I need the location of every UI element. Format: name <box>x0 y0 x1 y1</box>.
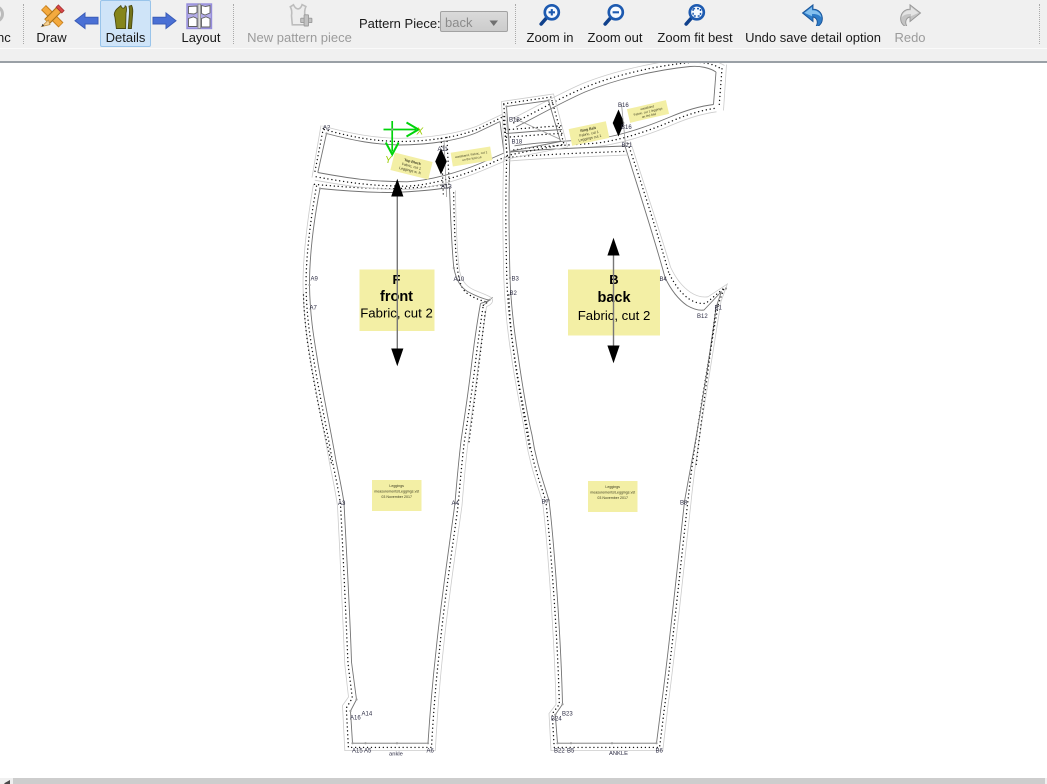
svg-text:B4: B4 <box>660 277 668 283</box>
svg-text:A11: A11 <box>438 147 449 153</box>
svg-text:ankle: ankle <box>389 752 403 758</box>
svg-text:B1: B1 <box>715 306 723 312</box>
svg-text:03 November 2017: 03 November 2017 <box>597 496 628 500</box>
svg-text:B12: B12 <box>697 314 708 320</box>
svg-text:03 November 2017: 03 November 2017 <box>381 495 412 499</box>
svg-text:A5: A5 <box>364 749 372 755</box>
svg-text:B3: B3 <box>512 277 520 283</box>
svg-text:A14: A14 <box>362 712 373 718</box>
svg-text:Fabric, cut 2: Fabric, cut 2 <box>360 306 433 321</box>
svg-text:A4: A4 <box>452 501 460 507</box>
svg-text:B22: B22 <box>554 749 565 755</box>
svg-text:B18: B18 <box>512 140 523 146</box>
svg-text:ANKLE: ANKLE <box>609 751 628 757</box>
svg-text:B7: B7 <box>542 500 550 506</box>
svg-text:A9: A9 <box>311 277 319 283</box>
svg-text:A13: A13 <box>441 185 452 191</box>
svg-text:A7: A7 <box>310 306 318 312</box>
svg-text:front: front <box>380 289 413 305</box>
svg-text:A6: A6 <box>427 749 435 755</box>
svg-text:A3: A3 <box>338 501 346 507</box>
svg-text:A10: A10 <box>454 277 465 283</box>
svg-text:Leggings: Leggings <box>389 484 404 488</box>
svg-text:back: back <box>597 290 631 306</box>
svg-text:A15: A15 <box>352 749 363 755</box>
svg-text:B2: B2 <box>510 291 518 297</box>
svg-text:B8: B8 <box>680 501 688 507</box>
svg-text:B21: B21 <box>622 143 633 149</box>
svg-text:B18: B18 <box>509 118 520 124</box>
svg-text:measurements/Leggings.vst: measurements/Leggings.vst <box>590 491 635 495</box>
svg-text:Leggings: Leggings <box>605 485 620 489</box>
svg-text:A2: A2 <box>323 126 331 132</box>
svg-text:B6: B6 <box>656 749 664 755</box>
svg-text:X: X <box>416 127 424 138</box>
svg-text:A16: A16 <box>350 716 361 722</box>
svg-text:F: F <box>393 272 401 287</box>
svg-text:measurements/Leggings.vst: measurements/Leggings.vst <box>374 490 419 494</box>
svg-text:B24: B24 <box>551 717 562 723</box>
svg-text:B23: B23 <box>562 712 573 718</box>
svg-text:B5: B5 <box>567 749 575 755</box>
svg-text:B16: B16 <box>618 103 629 109</box>
svg-text:B16: B16 <box>621 125 632 131</box>
